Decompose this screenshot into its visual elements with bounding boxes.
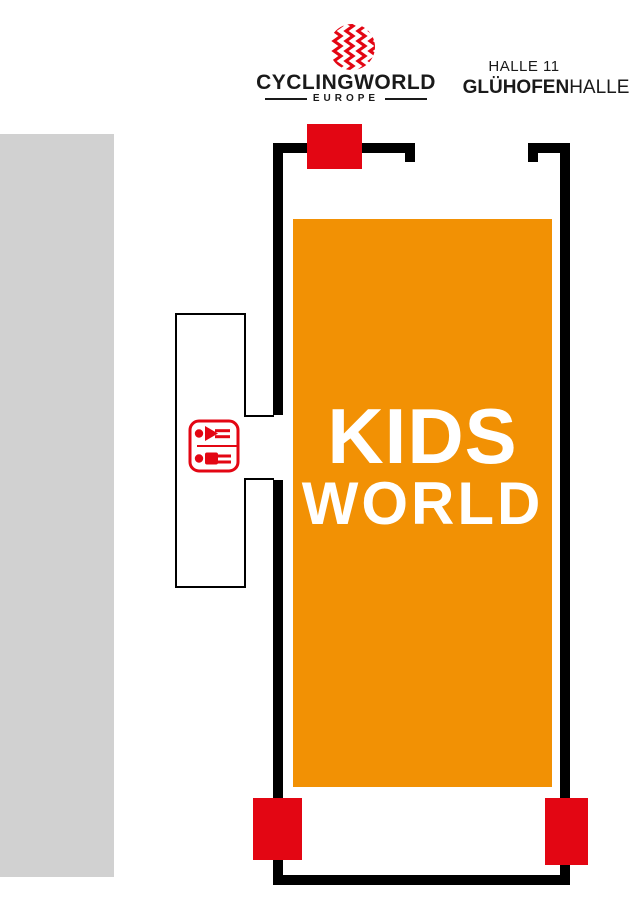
hall-name-bold: GLÜHOFEN bbox=[463, 77, 570, 98]
adjacent-hall-block bbox=[0, 134, 114, 877]
brand-name: CYCLINGWORLD bbox=[246, 71, 446, 95]
entrance-bottom-right bbox=[545, 798, 588, 865]
wall-top-left-segment bbox=[273, 143, 308, 153]
brand-region-row: EUROPE bbox=[256, 93, 436, 104]
wall-bottom bbox=[273, 875, 570, 885]
entrance-bottom-left bbox=[253, 798, 302, 860]
kids-world-label-line2: WORLD bbox=[293, 474, 552, 534]
kids-world-label-line1: KIDS bbox=[293, 397, 552, 475]
entrance-top bbox=[307, 124, 362, 169]
restroom-corridor bbox=[244, 415, 274, 480]
wall-top-right-stub bbox=[528, 143, 538, 162]
cyclingworld-globe-icon bbox=[327, 22, 377, 72]
floorplan-canvas: CYCLINGWORLD EUROPE HALLE 11 GLÜHOFENHAL… bbox=[0, 0, 640, 914]
right-rule bbox=[385, 98, 427, 100]
wall-left-upper bbox=[273, 143, 283, 415]
wall-right bbox=[560, 143, 570, 885]
brand-region: EUROPE bbox=[313, 93, 379, 104]
hall-name-label: GLÜHOFENHALLE bbox=[446, 77, 640, 99]
wc-restroom-icon bbox=[188, 419, 240, 473]
hall-number-label: HALLE 11 bbox=[424, 58, 624, 75]
hall-name-regular: HALLE bbox=[569, 77, 629, 98]
wall-top-middle-stub bbox=[405, 143, 415, 162]
left-rule bbox=[265, 98, 307, 100]
